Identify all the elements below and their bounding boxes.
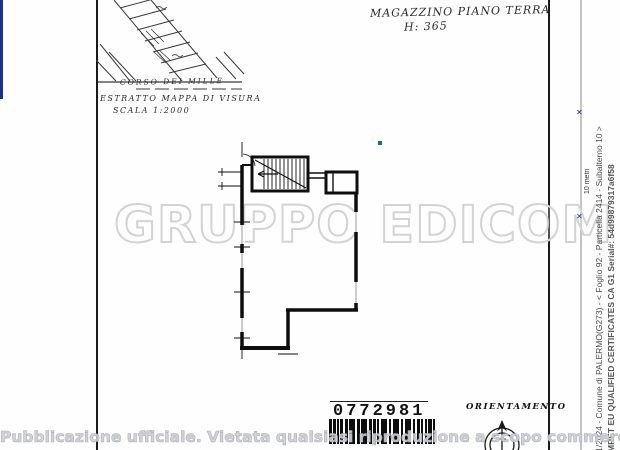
page-frame-right — [548, 0, 550, 450]
scale-bar — [0, 0, 3, 99]
scale-bar-bottom-tick: ✕ — [576, 212, 583, 221]
publication-notice: Pubblicazione ufficiale. Vietata qualsia… — [0, 428, 620, 446]
cadastral-floorplan-scan: CORSO DEI MILLE ESTRATTO MAPPA DI VISURA… — [0, 0, 620, 450]
street-label: CORSO DEI MILLE — [120, 76, 224, 87]
scale-bar-label: 10 metri — [584, 142, 591, 194]
orientation-label: ORIENTAMENTO — [466, 402, 567, 412]
map-scale-caption: SCALA 1:2000 — [113, 106, 190, 115]
margin-reference-text: 1/2024 - Comune di PALERMO(G273) - < Fog… — [594, 0, 604, 450]
scan-page-edge — [580, 0, 582, 450]
margin-certificate-text: MRET EU QUALIFIED CERTIFICATES CA G1 Ser… — [606, 190, 616, 450]
signature-dot — [378, 141, 382, 145]
handwritten-title: MAGAZZINO PIANO TERRA — [370, 3, 551, 20]
handwritten-height-note: H: 365 — [404, 19, 448, 34]
floor-plan-drawing — [200, 128, 372, 360]
scale-bar-top-tick: ✕ — [576, 108, 583, 117]
map-extract-caption: ESTRATTO MAPPA DI VISURA — [100, 94, 261, 103]
barcode-number: 0772981 — [330, 401, 428, 421]
